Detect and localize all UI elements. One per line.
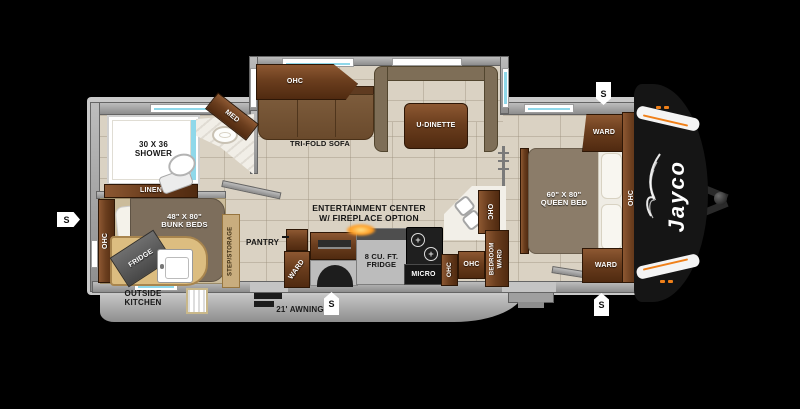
cap-marker-light [660,280,665,283]
dinette-table: U-DINETTE [404,103,468,149]
pantry-label: PANTRY [246,232,286,242]
ward-cabinet: WARD [284,251,310,288]
med-label: MED [223,108,241,124]
burner: + [411,233,425,247]
kitchen-ohc-small: OHC [441,254,458,286]
sofa-ohc-label: OHC [287,78,303,86]
outside-kitchen-hatch [186,288,208,314]
dinette-bench-left [374,66,388,152]
tri-fold-sofa [258,94,374,140]
main-entry-step [254,292,282,299]
slideout-side-window-left [250,68,257,108]
bedroom-ward-cabinet: BEDROOM WARD [485,230,509,287]
speaker-marker-bottom-right: S [594,293,609,316]
queen-label: QUEEN BED [541,199,587,207]
eagle-icon [642,146,664,236]
fireplace-hearth [310,260,358,286]
pocket-door-rung [498,152,509,154]
fireplace-glow [346,224,376,236]
micro-label: MICRO [411,271,435,279]
pantry-pointer [282,236,289,238]
trifold-sofa-label: TRI-FOLD SOFA [278,138,362,150]
udinette-label: U-DINETTE [416,122,455,130]
dinette-bench-back [374,66,498,81]
kitchen-ohc-sink: OHC [478,190,500,234]
step-storage-label: STEP/STORAGE [228,226,235,275]
bedroom-window [524,104,574,113]
outside-fridge-label: FRIDGE [127,248,154,270]
hitch-ball [714,192,727,205]
cooktop: + + [406,227,443,266]
fireplace-arch [317,265,353,287]
dinette-bench-right [484,66,498,152]
cap-marker-light [664,106,669,109]
outside-kitchen-label: OUTSIDE KITCHEN [106,289,180,309]
step-storage-column: STEP/STORAGE [222,214,240,288]
shower-label: SHOWER [135,150,172,159]
tv-screen [318,240,351,249]
bedroom-door-threshold [502,282,556,292]
cap-marker-light [668,280,673,283]
kitchen-fridge-label2: FRIDGE [367,261,397,269]
pocket-door-rung [498,160,509,162]
bed-pillow [601,204,622,250]
kitchen-ohc-box: OHC [458,251,485,279]
pantry-cabinet [286,229,308,251]
bedroom-entry-step [518,302,544,308]
burner: + [424,247,438,261]
microwave: MICRO [404,264,443,285]
jayco-logo: Jayco [664,160,690,232]
bedroom-ward-top: WARD [582,114,626,152]
floorplan-canvas: 30 X 36 SHOWER LINEN MED OHC 48" X 80" B… [0,0,800,409]
outside-kitchen-sink [157,249,193,283]
bunk-label: BUNK BEDS [161,221,207,229]
main-door-threshold [250,282,288,292]
queen-mattress: 60" X 80" QUEEN BED [528,148,600,254]
speaker-marker-left: S [57,212,80,227]
ward-cabinet-label: WARD [287,258,306,281]
bathroom-window [150,104,212,113]
rear-window [91,240,98,268]
pocket-door-rung [498,168,509,170]
front-cap: Jayco [634,84,708,302]
bed-pillow [601,153,622,199]
kitchen-fridge: 8 CU. FT. FRIDGE [356,228,407,285]
cap-stripe-top [635,105,700,132]
bedroom-ward-label: BEDROOM WARD [489,242,505,275]
slideout-window-right [392,58,462,66]
entertainment-label: ENTERTAINMENT CENTER W/ FIREPLACE OPTION [276,203,462,225]
linen-label: LINEN [140,187,162,195]
tv-cabinet [310,232,358,260]
slideout-side-window-right [502,68,509,108]
